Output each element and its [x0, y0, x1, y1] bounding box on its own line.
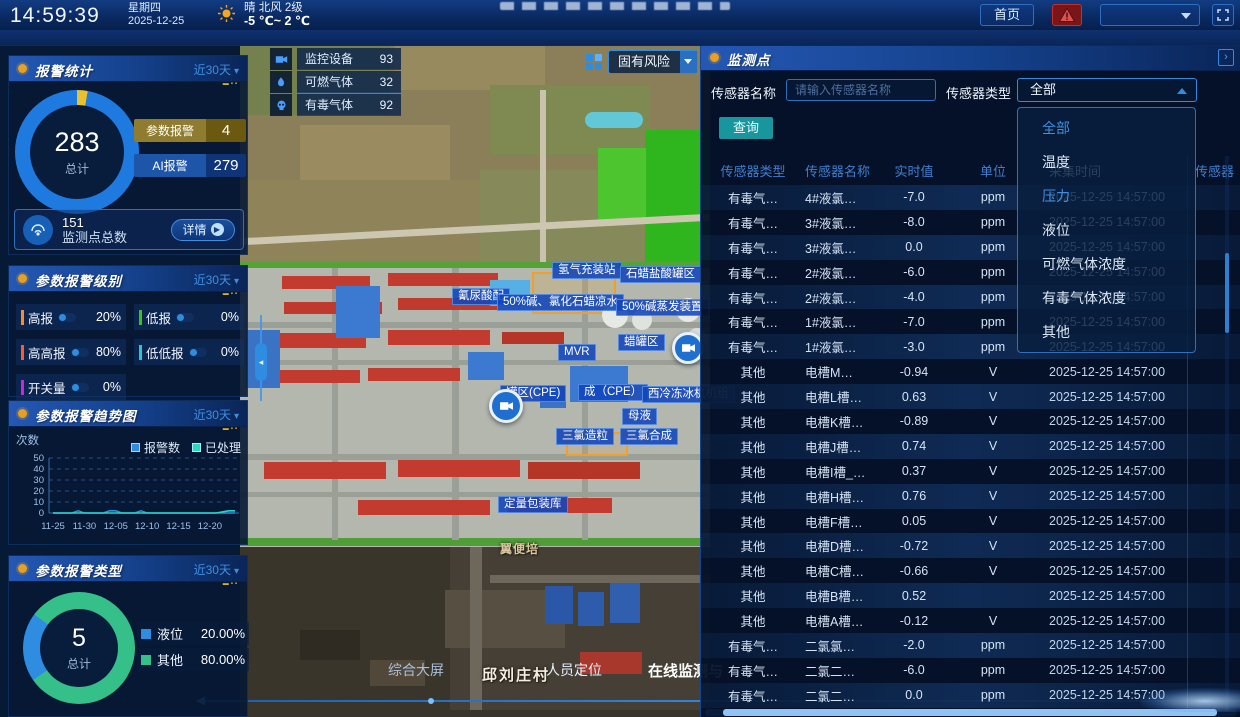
alarm-level-item: 低低报 0% — [134, 339, 244, 365]
range-select[interactable]: 近30天▬▪▪ — [194, 61, 239, 78]
cell-unit: V — [947, 614, 1039, 628]
sun-icon — [218, 5, 235, 22]
dropdown-option[interactable]: 全部 — [1018, 111, 1195, 145]
layer-count: 32 — [380, 75, 393, 89]
grid-icon[interactable] — [586, 54, 602, 70]
param-alarm-label: 参数报警 — [134, 119, 206, 142]
panel-header: 参数报警级别 近30天▬▪▪ — [9, 266, 247, 292]
table-row[interactable]: 有毒气…二氯氯…-2.0ppm2025-12-25 14:57:00 — [701, 633, 1240, 658]
panel-header: 参数报警类型 近30天▬▪▪ — [9, 556, 247, 582]
svg-text:12-15: 12-15 — [166, 521, 190, 532]
cell-time: 2025-12-25 14:57:00 — [1039, 688, 1187, 702]
alarm-total-label: 总计 — [65, 160, 89, 177]
cell-unit: V — [947, 390, 1039, 404]
chevron-up-icon — [1177, 88, 1187, 94]
cell-name: 4#液氯… — [805, 188, 881, 207]
dropdown-option[interactable]: 有毒气体浓度 — [1018, 281, 1195, 315]
fullscreen-button[interactable] — [1212, 4, 1234, 26]
cell-type: 其他 — [701, 462, 805, 481]
cell-value: -4.0 — [881, 290, 947, 304]
cell-time: 2025-12-25 14:57:00 — [1039, 539, 1187, 553]
cell-time: 2025-12-25 14:57:00 — [1039, 663, 1187, 677]
cell-type: 有毒气… — [701, 312, 805, 331]
cell-value: -0.72 — [881, 539, 947, 553]
table-row[interactable]: 有毒气…二氯二…0.0ppm2025-12-25 14:57:00 — [701, 683, 1240, 708]
cell-overflow — [1187, 384, 1240, 409]
map-terrain-shape — [240, 492, 710, 497]
scrollbar-thumb[interactable] — [723, 709, 1217, 716]
ai-alarm-label: AI报警 — [134, 154, 206, 177]
plant-satellite-map[interactable] — [240, 30, 710, 717]
cell-name: 电槽F槽… — [805, 512, 881, 531]
cell-overflow — [1187, 434, 1240, 459]
panel-alarm-levels: 参数报警级别 近30天▬▪▪ 高报 20% 低报 0% 高高报 80% 低低报 … — [8, 265, 248, 397]
cell-value: 0.74 — [881, 439, 947, 453]
types-total-label: 总计 — [67, 655, 91, 672]
sensor-type-value: 全部 — [1030, 82, 1056, 97]
map-terrain-shape — [470, 547, 482, 717]
cell-time: 2025-12-25 14:57:00 — [1039, 564, 1187, 578]
param-alarm-value: 4 — [206, 119, 246, 142]
panel-dot-icon — [18, 64, 27, 73]
cell-overflow — [1187, 633, 1240, 658]
range-select[interactable]: 近30天▬▪▪ — [194, 271, 239, 288]
cell-name: 二氯二… — [805, 661, 881, 680]
cell-name: 电槽K槽… — [805, 412, 881, 431]
column-header: 实时值 — [881, 161, 947, 180]
cell-value: 0.05 — [881, 514, 947, 528]
monitor-count: 151 — [62, 215, 127, 230]
trend-line-chart: 0102030405011-2511-3012-0512-1012-1512-2… — [13, 453, 245, 541]
alarm-level-item: 低报 0% — [134, 304, 244, 330]
cell-time: 2025-12-25 14:57:00 — [1039, 390, 1187, 404]
alarm-level-list: 高报 20% 低报 0% 高高报 80% 低低报 0% 开关量 0% — [16, 304, 244, 400]
cell-unit: V — [947, 414, 1039, 428]
legend-label: 其他 — [157, 650, 183, 669]
vertical-scrollbar[interactable] — [1225, 156, 1229, 711]
dropdown-option[interactable]: 液位 — [1018, 213, 1195, 247]
legend-label: 液位 — [157, 624, 183, 643]
panel-header: 监测点 › — [701, 45, 1240, 71]
cell-name: 电槽L槽… — [805, 387, 881, 406]
cell-name: 1#液氯… — [805, 337, 881, 356]
svg-text:10: 10 — [33, 497, 44, 508]
map-terrain-shape — [610, 583, 640, 623]
map-layer-toggle[interactable]: 监控设备93 — [270, 48, 401, 70]
layer-label: 可燃气体 — [305, 73, 353, 90]
map-terrain-shape — [502, 332, 564, 344]
level-value: 20% — [96, 310, 121, 324]
cell-time: 2025-12-25 14:57:00 — [1039, 514, 1187, 528]
clock: 14:59:39 — [10, 4, 100, 28]
cell-value: -2.0 — [881, 638, 947, 652]
cell-type: 有毒气… — [701, 238, 805, 257]
sensor-type-label: 传感器类型 — [946, 83, 1011, 102]
map-terrain-shape — [585, 112, 643, 128]
svg-text:0: 0 — [39, 508, 44, 519]
legend-swatch — [141, 629, 151, 639]
map-area-label[interactable]: 三氯造粒 — [556, 428, 614, 445]
cell-type: 其他 — [701, 387, 805, 406]
layer-count: 92 — [380, 98, 393, 112]
cell-type: 其他 — [701, 512, 805, 531]
cell-time: 2025-12-25 14:57:00 — [1039, 589, 1187, 603]
cell-value: -6.0 — [881, 663, 947, 677]
map-area-label[interactable]: MVR — [558, 344, 596, 361]
legend-swatch — [131, 443, 140, 452]
alarm-types-donut: 5 总计 — [23, 592, 135, 704]
cell-name: 电槽A槽… — [805, 611, 881, 630]
skull-icon — [270, 94, 292, 116]
timeline-dot[interactable] — [428, 698, 434, 704]
cell-type: 其他 — [701, 611, 805, 630]
svg-text:40: 40 — [33, 464, 44, 475]
level-toggle[interactable] — [176, 313, 194, 322]
layer-toggle-body: 有毒气体92 — [297, 94, 401, 116]
map-terrain-shape — [578, 592, 604, 626]
cell-type: 其他 — [701, 586, 805, 605]
collapse-handle-icon[interactable]: ◂ — [255, 343, 267, 381]
cell-time: 2025-12-25 14:57:00 — [1039, 414, 1187, 428]
dashboard: 氢气充装站石蜡盐酸罐区氰尿酸配50%碱、氯化石蜡凉水50%碱蒸发装置MVR蜡罐区… — [0, 0, 1240, 717]
scrollbar-thumb[interactable] — [1225, 253, 1229, 333]
legend-value: 20.00% — [201, 626, 245, 641]
cell-value: -0.89 — [881, 414, 947, 428]
cell-name: 电槽C槽… — [805, 561, 881, 580]
weather-temperature: -5 ℃~ 2 ℃ — [244, 14, 310, 28]
play-icon: ▶ — [211, 223, 224, 236]
cell-value: 0.76 — [881, 489, 947, 503]
cell-value: 0.52 — [881, 589, 947, 603]
left-panel-collapse-track[interactable]: ◂ — [260, 315, 262, 401]
cell-value: -8.0 — [881, 215, 947, 229]
header-band — [0, 30, 1240, 46]
panel-title: 报警统计 — [35, 60, 93, 80]
layer-toggle-body: 可燃气体32 — [297, 71, 401, 93]
map-area-label[interactable]: 定量包装库 — [498, 496, 568, 513]
svg-text:12-20: 12-20 — [198, 521, 222, 532]
cell-type: 其他 — [701, 412, 805, 431]
cell-name: 二氯二… — [805, 686, 881, 705]
map-area-label[interactable]: 50%碱蒸发装置 — [616, 299, 709, 316]
monitor-count-card: 151 监测点总数 详情▶ — [14, 209, 244, 250]
camera-marker-icon[interactable] — [489, 389, 523, 423]
clipped-header-title — [500, 2, 730, 10]
types-total-value: 5 — [72, 624, 86, 653]
cell-type: 有毒气… — [701, 188, 805, 207]
alarm-level-item: 高高报 80% — [16, 339, 126, 365]
sensor-icon — [23, 215, 53, 245]
types-legend-item: 液位 20.00% — [137, 622, 249, 645]
cell-overflow — [1187, 509, 1240, 534]
level-label: 开关量 — [28, 378, 66, 397]
cell-overflow — [1187, 484, 1240, 509]
param-alarm-stat: 参数报警 4 — [134, 119, 246, 142]
cell-value: -6.0 — [881, 265, 947, 279]
level-toggle[interactable] — [189, 348, 207, 357]
sensor-type-select[interactable]: 全部 — [1017, 78, 1197, 102]
cell-name: 电槽I槽_… — [805, 462, 881, 481]
cell-type: 其他 — [701, 561, 805, 580]
map-terrain-shape — [358, 500, 490, 515]
table-row[interactable]: 其他电槽M…-0.94V2025-12-25 14:57:00 — [701, 359, 1240, 384]
map-area-label[interactable]: 母液 — [622, 408, 657, 425]
header-select[interactable] — [1100, 4, 1200, 26]
ai-alarm-value: 279 — [206, 154, 246, 177]
cell-value: -7.0 — [881, 190, 947, 204]
cell-overflow — [1187, 359, 1240, 384]
svg-text:11-30: 11-30 — [73, 521, 97, 532]
panel-alarm-stats: 报警统计 近30天▬▪▪ 283 总计 参数报警 4 AI报警 279 151 … — [8, 55, 248, 255]
panel-expand-button[interactable]: › — [1218, 49, 1234, 66]
alarm-level-item: 开关量 0% — [16, 374, 126, 400]
level-value: 0% — [103, 380, 121, 394]
camera-icon — [270, 48, 292, 70]
cell-type: 有毒气… — [701, 337, 805, 356]
risk-type-select[interactable]: 固有风险 — [608, 50, 698, 74]
level-toggle[interactable] — [71, 383, 89, 392]
level-toggle[interactable] — [71, 348, 89, 357]
table-row[interactable]: 其他电槽L槽…0.63V2025-12-25 14:57:00 — [701, 384, 1240, 409]
cell-value: -0.12 — [881, 614, 947, 628]
bottom-nav-item[interactable]: 人员定位 — [546, 660, 602, 680]
table-row[interactable]: 其他电槽A槽…-0.12V2025-12-25 14:57:00 — [701, 608, 1240, 633]
cell-unit: ppm — [947, 688, 1039, 702]
panel-header: 报警统计 近30天▬▪▪ — [9, 56, 247, 82]
level-toggle[interactable] — [58, 313, 76, 322]
cell-unit: V — [947, 489, 1039, 503]
cell-value: 0.0 — [881, 688, 947, 702]
cell-overflow — [1187, 409, 1240, 434]
cell-name: 电槽M… — [805, 362, 881, 381]
level-label: 低低报 — [146, 343, 184, 362]
cell-overflow — [1187, 608, 1240, 633]
table-row[interactable]: 其他电槽D槽…-0.72V2025-12-25 14:57:00 — [701, 533, 1240, 558]
cell-unit: V — [947, 439, 1039, 453]
cell-type: 其他 — [701, 362, 805, 381]
date: 2025-12-25 — [128, 15, 184, 28]
cell-name: 二氯氯… — [805, 636, 881, 655]
range-select[interactable]: 近30天▬▪▪ — [194, 561, 239, 578]
cell-value: 0.63 — [881, 390, 947, 404]
cell-unit: V — [947, 464, 1039, 478]
panel-title: 监测点 — [727, 49, 771, 69]
risk-type-value: 固有风险 — [618, 54, 670, 69]
sensor-type-dropdown: 全部温度压力液位可燃气体浓度有毒气体浓度其他 — [1017, 107, 1196, 353]
cell-time: 2025-12-25 14:57:00 — [1039, 489, 1187, 503]
map-area-label[interactable]: 蜡罐区 — [618, 334, 665, 351]
cell-name: 2#液氯… — [805, 288, 881, 307]
map-terrain-shape — [240, 180, 480, 265]
legend-swatch — [141, 655, 151, 665]
flame-icon — [270, 71, 292, 93]
weekday: 星期四 — [128, 2, 184, 15]
cell-overflow — [1187, 459, 1240, 484]
map-terrain-shape — [468, 352, 504, 380]
column-header: 传感器类型 — [701, 161, 805, 180]
cell-overflow — [1187, 658, 1240, 683]
table-row[interactable]: 其他电槽I槽_…0.37V2025-12-25 14:57:00 — [701, 459, 1240, 484]
table-row[interactable]: 其他电槽F槽…0.05V2025-12-25 14:57:00 — [701, 509, 1240, 534]
map-area-label[interactable]: 成（CPE） — [578, 384, 648, 401]
layer-count: 93 — [380, 52, 393, 66]
sensor-name-label: 传感器名称 — [711, 83, 776, 102]
cell-value: -7.0 — [881, 315, 947, 329]
panel-title: 参数报警级别 — [35, 270, 122, 290]
panel-dot-icon — [18, 564, 27, 573]
cell-unit: V — [947, 539, 1039, 553]
ai-alarm-stat: AI报警 279 — [134, 154, 246, 177]
map-layer-toggle[interactable]: 可燃气体32 — [270, 71, 401, 93]
level-label: 高高报 — [28, 343, 66, 362]
cell-type: 有毒气… — [701, 661, 805, 680]
cell-name: 3#液氯… — [805, 213, 881, 232]
table-row[interactable]: 其他电槽B槽…0.522025-12-25 14:57:00 — [701, 583, 1240, 608]
types-legend-item: 其他 80.00% — [137, 648, 249, 671]
layer-label: 有毒气体 — [305, 96, 353, 113]
cell-value: -0.94 — [881, 365, 947, 379]
panel-dot-icon — [18, 409, 27, 418]
legend-swatch — [192, 443, 201, 452]
cell-type: 其他 — [701, 437, 805, 456]
map-terrain-shape — [300, 125, 450, 180]
map-terrain-shape — [528, 462, 640, 479]
map-terrain-shape — [388, 273, 498, 286]
map-area-label[interactable]: 石蜡盐酸罐区 — [620, 266, 701, 283]
cell-time: 2025-12-25 14:57:00 — [1039, 439, 1187, 453]
dropdown-option[interactable]: 温度 — [1018, 145, 1195, 179]
cell-overflow — [1187, 558, 1240, 583]
cell-time: 2025-12-25 14:57:00 — [1039, 614, 1187, 628]
cell-name: 电槽H槽… — [805, 487, 881, 506]
dropdown-option[interactable]: 其他 — [1018, 315, 1195, 349]
alarm-total-value: 283 — [54, 127, 99, 158]
map-area-label[interactable]: 氢气充装站 — [552, 262, 622, 279]
bottom-nav-item[interactable]: 综合大屏 — [388, 660, 444, 680]
map-terrain-shape — [368, 368, 460, 381]
map-terrain-shape — [540, 90, 546, 265]
table-row[interactable]: 其他电槽C槽…-0.66V2025-12-25 14:57:00 — [701, 558, 1240, 583]
column-header: 传感器名称 — [805, 161, 881, 180]
level-color-bar — [139, 310, 142, 325]
cell-value: 0.37 — [881, 464, 947, 478]
cell-type: 有毒气… — [701, 263, 805, 282]
map-terrain-shape — [388, 330, 490, 345]
svg-text:20: 20 — [33, 486, 44, 497]
cell-overflow — [1187, 683, 1240, 708]
map-area-label[interactable]: 50%碱、氯化石蜡凉水 — [497, 294, 624, 311]
cell-type: 有毒气… — [701, 288, 805, 307]
panel-dot-icon — [710, 53, 719, 62]
cell-unit: ppm — [947, 638, 1039, 652]
cell-unit: V — [947, 514, 1039, 528]
home-button[interactable]: 首页 — [980, 4, 1034, 26]
trend-y-label: 次数 — [16, 432, 39, 448]
weather-block: 晴 北风 2级 -5 ℃~ 2 ℃ — [244, 2, 310, 29]
alarm-level-item: 高报 20% — [16, 304, 126, 330]
horizontal-scrollbar[interactable] — [705, 709, 1237, 716]
detail-button[interactable]: 详情▶ — [171, 219, 235, 241]
range-select[interactable]: 近30天▬▪▪ — [194, 406, 239, 423]
map-terrain-shape — [240, 538, 710, 546]
cell-name: 2#液氯… — [805, 263, 881, 282]
level-label: 高报 — [28, 308, 53, 327]
cell-time: 2025-12-25 14:57:00 — [1039, 638, 1187, 652]
map-terrain-shape — [264, 462, 386, 479]
legend-value: 80.00% — [201, 652, 245, 667]
cell-type: 其他 — [701, 487, 805, 506]
map-terrain-shape — [490, 575, 710, 583]
alarm-button[interactable] — [1052, 4, 1082, 26]
map-area-label[interactable]: 三氯合成 — [620, 428, 678, 445]
map-terrain-shape — [240, 710, 710, 717]
table-row[interactable]: 有毒气…二氯二…-6.0ppm2025-12-25 14:57:00 — [701, 658, 1240, 683]
cell-value: -3.0 — [881, 340, 947, 354]
monitor-count-label: 监测点总数 — [62, 230, 127, 245]
cell-name: 电槽B槽… — [805, 586, 881, 605]
level-value: 0% — [221, 345, 239, 359]
svg-text:50: 50 — [33, 453, 44, 464]
level-color-bar — [139, 345, 142, 360]
level-color-bar — [21, 345, 24, 360]
panel-alarm-types: 参数报警类型 近30天▬▪▪ 5 总计 液位 20.00% 其他 80.00% — [8, 555, 248, 717]
cell-name: 1#液氯… — [805, 312, 881, 331]
panel-title: 参数报警类型 — [35, 560, 122, 580]
cell-unit: V — [947, 564, 1039, 578]
cell-unit: ppm — [947, 663, 1039, 677]
dropdown-option[interactable]: 可燃气体浓度 — [1018, 247, 1195, 281]
sensor-name-input[interactable] — [786, 79, 936, 101]
query-button[interactable]: 查询 — [719, 117, 773, 139]
level-color-bar — [21, 310, 24, 325]
svg-text:11-25: 11-25 — [41, 521, 65, 532]
date-block: 星期四 2025-12-25 — [128, 2, 184, 28]
map-terrain-shape — [336, 286, 380, 338]
cell-value: -0.66 — [881, 564, 947, 578]
cell-name: 电槽D槽… — [805, 536, 881, 555]
layer-toggle-body: 监控设备93 — [297, 48, 401, 70]
cell-value: 0.0 — [881, 240, 947, 254]
svg-text:12-10: 12-10 — [135, 521, 159, 532]
table-row[interactable]: 其他电槽K槽…-0.89V2025-12-25 14:57:00 — [701, 409, 1240, 434]
cell-type: 有毒气… — [701, 636, 805, 655]
table-row[interactable]: 其他电槽J槽…0.74V2025-12-25 14:57:00 — [701, 434, 1240, 459]
map-terrain-shape — [300, 630, 360, 660]
svg-text:12-05: 12-05 — [104, 521, 128, 532]
panel-title: 参数报警趋势图 — [35, 405, 137, 425]
panel-alarm-trend: 参数报警趋势图 近30天▬▪▪ 次数 报警数 已处理 0102030405011… — [8, 400, 248, 545]
cell-overflow — [1187, 583, 1240, 608]
cell-type: 其他 — [701, 536, 805, 555]
level-value: 80% — [96, 345, 121, 359]
chevron-down-icon — [1181, 13, 1191, 19]
level-label: 低报 — [146, 308, 171, 327]
map-layer-counters: 监控设备93可燃气体32有毒气体92 — [270, 48, 401, 117]
cell-name: 电槽J槽… — [805, 437, 881, 456]
level-color-bar — [21, 380, 24, 395]
cell-time: 2025-12-25 14:57:00 — [1039, 464, 1187, 478]
svg-text:30: 30 — [33, 475, 44, 486]
cell-type: 有毒气… — [701, 213, 805, 232]
dropdown-option[interactable]: 压力 — [1018, 179, 1195, 213]
chevron-down-icon — [680, 51, 697, 73]
cell-name: 3#液氯… — [805, 238, 881, 257]
table-row[interactable]: 其他电槽H槽…0.76V2025-12-25 14:57:00 — [701, 484, 1240, 509]
level-value: 0% — [221, 310, 239, 324]
map-terrain-shape — [598, 148, 646, 223]
panel-header: 参数报警趋势图 近30天▬▪▪ — [9, 401, 247, 427]
map-layer-toggle[interactable]: 有毒气体92 — [270, 94, 401, 116]
